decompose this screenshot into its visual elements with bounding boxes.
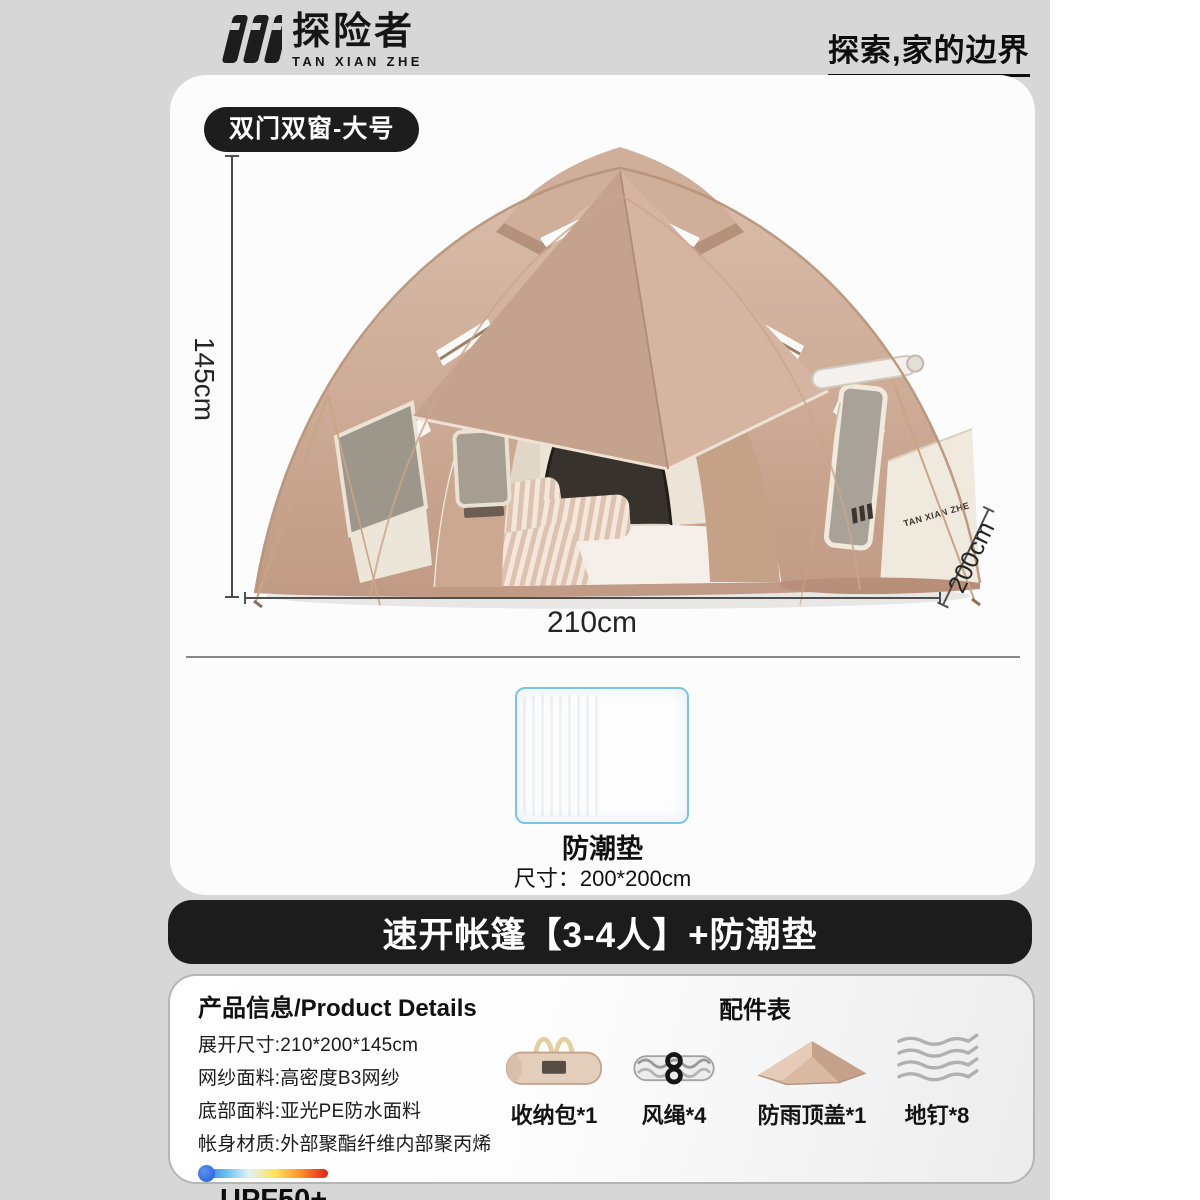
rain-cover-icon	[747, 1026, 877, 1092]
accessory-item-stakes: 地钉*8	[867, 1026, 1007, 1130]
tent-product-photo: TAN XIAN ZHE	[240, 135, 985, 615]
brand-logo: 探险者 TAN XIAN ZHE	[208, 13, 423, 69]
width-dimension-line	[244, 597, 941, 599]
wind-rope-icon	[614, 1026, 734, 1092]
accessory-label: 防雨顶盖*1	[742, 1098, 882, 1130]
accessory-label: 风绳*4	[604, 1098, 744, 1130]
product-hero-card: 双门双窗-大号	[170, 75, 1035, 895]
product-title-banner: 速开帐篷【3-4人】+防潮垫	[168, 900, 1032, 964]
uv-slider-dot-icon	[198, 1165, 215, 1182]
product-details-block: 产品信息/Product Details 展开尺寸:210*200*145cm …	[198, 988, 498, 1200]
accessory-item-wind-rope: 风绳*4	[604, 1026, 744, 1130]
width-dimension-label: 210cm	[492, 606, 692, 640]
detail-line-body: 帐身材质:外部聚酯纤维内部聚丙烯	[198, 1129, 498, 1156]
moisture-pad-image	[515, 687, 689, 824]
storage-bag-icon	[494, 1026, 614, 1092]
detail-line-size: 展开尺寸:210*200*145cm	[198, 1030, 498, 1057]
accessories-title: 配件表	[655, 990, 855, 1025]
product-title: 速开帐篷【3-4人】+防潮垫	[382, 907, 817, 958]
product-info-panel: 产品信息/Product Details 展开尺寸:210*200*145cm …	[168, 974, 1035, 1184]
accessory-item-rain-cover: 防雨顶盖*1	[742, 1026, 882, 1130]
brand-name-en: TAN XIAN ZHE	[292, 54, 423, 69]
accessory-label: 收纳包*1	[484, 1098, 624, 1130]
accessory-item-storage-bag: 收纳包*1	[484, 1026, 624, 1130]
stakes-icon	[882, 1026, 992, 1092]
accessory-label: 地钉*8	[867, 1098, 1007, 1130]
height-dimension-label: 145cm	[188, 323, 220, 435]
product-detail-page: 探险者 TAN XIAN ZHE 探索,家的边界 双门双窗-大号	[0, 0, 1200, 1200]
moisture-pad-size: 尺寸：200*200cm	[170, 861, 1035, 893]
section-divider	[186, 656, 1020, 658]
uv-gradient-bar	[200, 1169, 328, 1178]
detail-line-mesh: 网纱面料:高密度B3网纱	[198, 1063, 498, 1090]
tanxianzhe-triple-stroke-logo-icon	[208, 13, 282, 65]
brand-slogan: 探索,家的边界	[828, 25, 1030, 77]
tent-illustration: TAN XIAN ZHE	[240, 135, 985, 615]
brand-name-cn: 探险者	[292, 13, 423, 51]
upf-rating: UPF50+	[220, 1184, 498, 1200]
height-dimension-line	[231, 155, 233, 598]
details-title: 产品信息/Product Details	[198, 988, 498, 1023]
brand-text: 探险者 TAN XIAN ZHE	[292, 13, 423, 69]
detail-line-bottom: 底部面料:亚光PE防水面料	[198, 1096, 498, 1123]
